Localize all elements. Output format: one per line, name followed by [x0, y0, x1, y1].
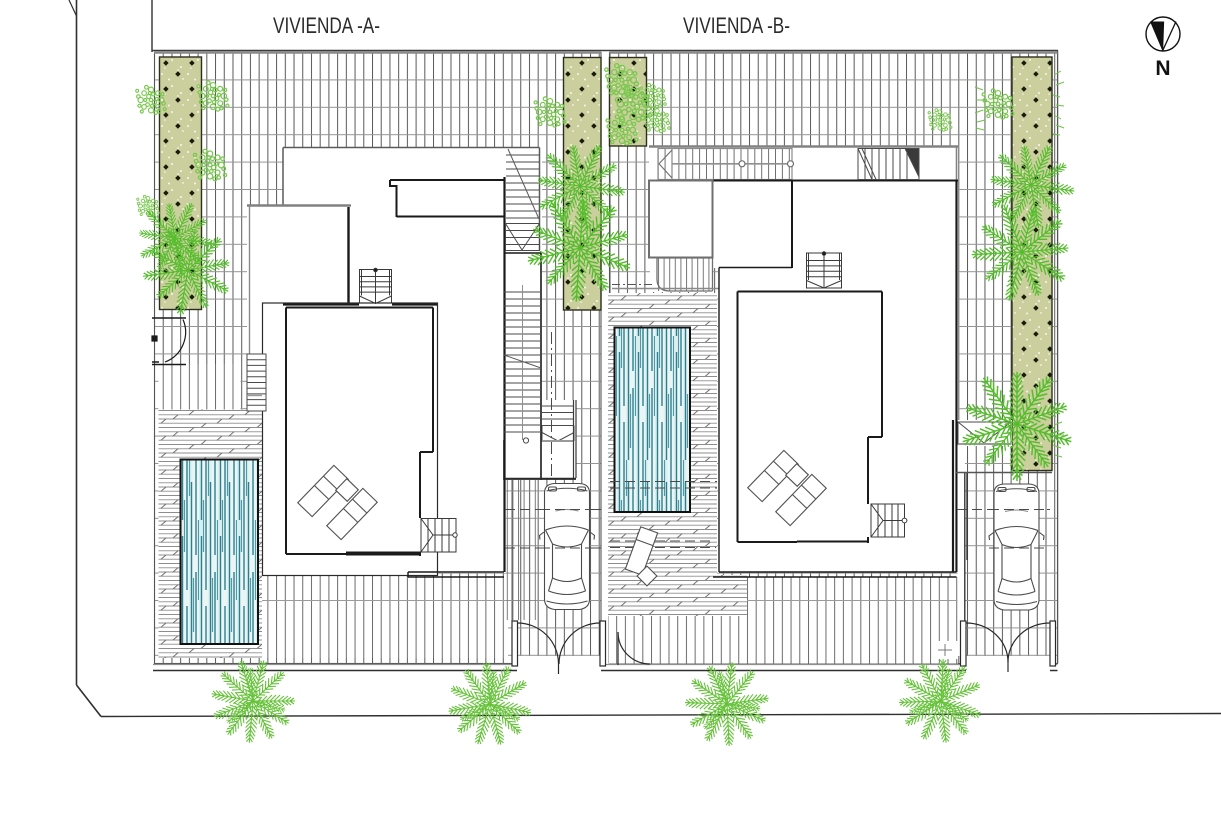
svg-text:VIVIENDA -B-: VIVIENDA -B- [683, 13, 790, 38]
svg-text:VIVIENDA -A-: VIVIENDA -A- [273, 13, 380, 38]
svg-text:N: N [1155, 57, 1170, 80]
